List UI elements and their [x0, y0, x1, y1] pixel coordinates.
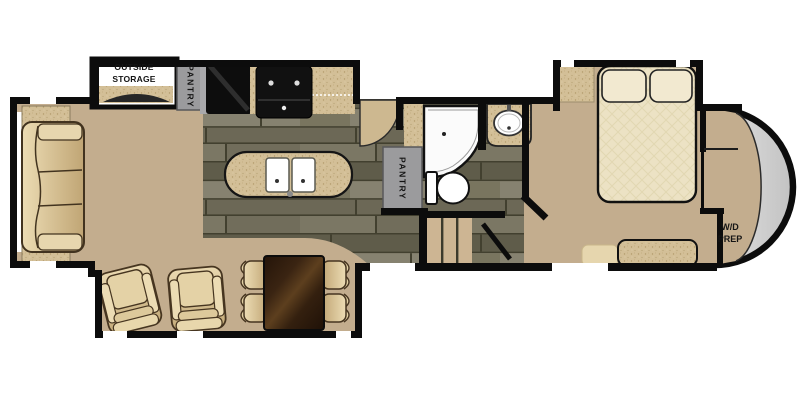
dining-table	[264, 256, 324, 330]
pantry-cabinet-hall	[383, 147, 422, 210]
dining-chair	[322, 261, 349, 289]
refrigerator-icon	[200, 64, 252, 114]
bed	[598, 66, 696, 202]
nightstand	[556, 66, 594, 102]
recliner-2	[167, 266, 226, 332]
range-stove-icon	[256, 66, 312, 118]
steps-to-bedroom	[427, 218, 472, 266]
bench	[582, 245, 618, 266]
bath-ledge	[404, 104, 423, 148]
pillow	[602, 70, 646, 102]
pillow	[650, 70, 692, 102]
dining-chair	[322, 294, 349, 322]
pantry-cabinet-kitchen	[177, 62, 204, 110]
floorplan-drawing	[0, 0, 800, 400]
toilet-icon	[426, 172, 469, 204]
sofa	[22, 122, 84, 252]
floor-plan: OUTSIDE STORAGE PANTRY PANTRY W/D PREP	[0, 0, 800, 400]
dresser	[618, 240, 697, 266]
